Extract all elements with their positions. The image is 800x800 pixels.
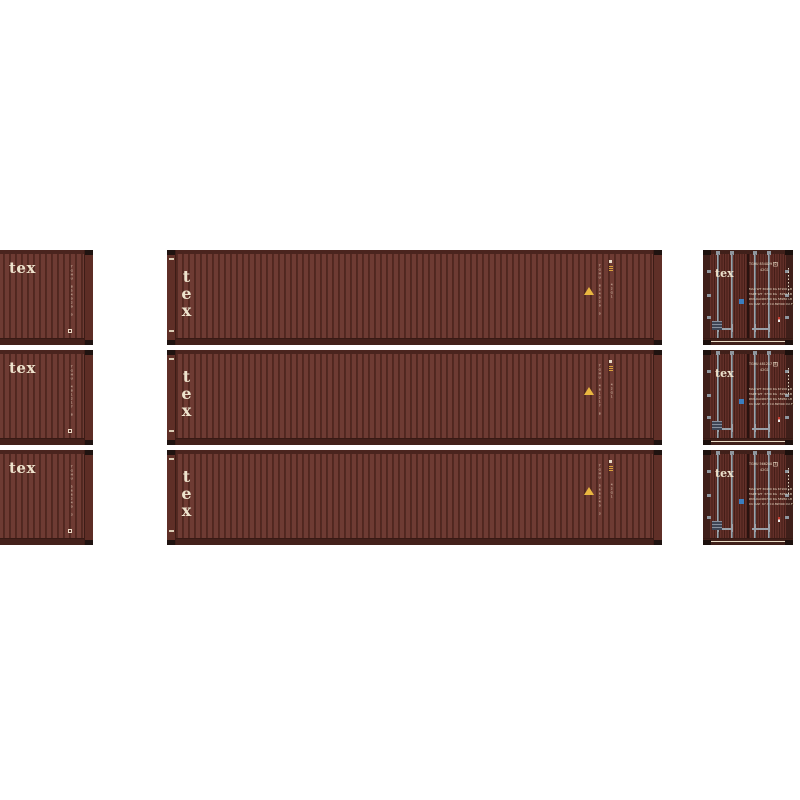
corner-casting xyxy=(85,450,93,455)
tex-logo: tex xyxy=(9,459,36,477)
hazard-triangle-icon xyxy=(584,287,594,295)
corner-casting xyxy=(785,350,793,355)
corner-casting xyxy=(785,440,793,445)
top-rail xyxy=(167,250,662,254)
check-digit: 3 xyxy=(773,462,777,466)
post-marking-vertical xyxy=(788,468,789,494)
hinge xyxy=(785,316,789,319)
hinge xyxy=(707,394,711,397)
corner-post xyxy=(703,250,710,345)
corner-casting xyxy=(703,540,711,545)
check-digit-box xyxy=(68,329,72,333)
spec-row: CU CAP67.7 CU.M2390 CU.FT xyxy=(749,302,792,307)
sill-stripe xyxy=(708,441,788,443)
handle-keeper xyxy=(768,324,770,332)
container-side-view-cropped: tex TGHU 481217 8 xyxy=(0,350,93,445)
top-rail xyxy=(0,350,93,354)
container-side-view-cropped: tex TGHU 566240 3 xyxy=(0,450,93,545)
hinge xyxy=(707,494,711,497)
top-rail xyxy=(0,450,93,454)
corner-post xyxy=(653,450,662,545)
container-number-vertical: TGHU 854029 0 xyxy=(597,264,601,329)
tex-logo-vertical: tex xyxy=(178,467,194,518)
corner-casting xyxy=(654,250,662,255)
corner-casting xyxy=(167,250,175,255)
corner-casting xyxy=(654,340,662,345)
corner-post xyxy=(84,350,93,445)
container-number: TGHU 4812178 xyxy=(749,362,793,366)
corner-casting xyxy=(167,440,175,445)
bottom-rail xyxy=(167,538,662,545)
hinge-mark xyxy=(169,430,174,432)
container-number-vertical: TGHU 854029 0 xyxy=(69,265,73,330)
bottom-rail xyxy=(0,438,93,445)
check-digit-box xyxy=(68,529,72,533)
data-plate xyxy=(712,421,722,430)
hinge xyxy=(707,516,711,519)
type-code: 42G1 xyxy=(760,369,769,372)
hinge xyxy=(785,416,789,419)
hazard-triangle-icon xyxy=(584,487,594,495)
container-door-view: tex TGHU 5662403 42G1 MAX WT30480 KG6720… xyxy=(703,450,793,545)
corner-post xyxy=(167,350,176,445)
tex-logo: tex xyxy=(715,467,734,480)
bottom-rail xyxy=(167,438,662,445)
corner-post xyxy=(167,250,176,345)
corner-post xyxy=(703,450,710,545)
tex-logo-vertical: tex xyxy=(178,367,194,418)
corner-casting xyxy=(785,340,793,345)
container-number-text: TGHU 854029 xyxy=(749,262,772,266)
hinge-mark xyxy=(169,530,174,532)
container-number-vertical: TGHU 481217 8 xyxy=(69,365,73,430)
corner-casting xyxy=(785,540,793,545)
hinge-mark xyxy=(169,458,174,460)
container-side-view-cropped: tex TGHU 854029 0 xyxy=(0,250,93,345)
type-code-vertical: 42G1 xyxy=(610,383,613,399)
corner-casting xyxy=(703,450,711,455)
sill-stripe xyxy=(708,341,788,343)
corner-post xyxy=(84,450,93,545)
type-code: 42G1 xyxy=(760,469,769,472)
gold-bars-mark xyxy=(609,266,613,271)
hinge-mark xyxy=(169,330,174,332)
blue-sticker xyxy=(739,299,744,304)
corner-casting xyxy=(85,440,93,445)
check-digit: 8 xyxy=(773,362,777,366)
tex-logo-vertical: tex xyxy=(178,267,194,318)
container-number: TGHU 5662403 xyxy=(749,462,793,466)
blue-sticker xyxy=(739,499,744,504)
corner-casting xyxy=(654,450,662,455)
blue-sticker xyxy=(739,399,744,404)
sill-stripe xyxy=(708,541,788,543)
handle-keeper xyxy=(731,524,733,532)
corner-post xyxy=(653,250,662,345)
type-code: 42G1 xyxy=(760,269,769,272)
container-number-text: TGHU 566240 xyxy=(749,462,772,466)
corner-casting xyxy=(85,340,93,345)
hinge xyxy=(707,270,711,273)
handle-keeper xyxy=(768,524,770,532)
corner-post xyxy=(167,450,176,545)
check-digit: 0 xyxy=(773,262,777,266)
container-door-view: tex TGHU 4812178 42G1 MAX WT30480 KG6720… xyxy=(703,350,793,445)
seal-mark xyxy=(778,317,780,322)
container-side-view: tex TGHU 566240 3 42G1 xyxy=(167,450,662,545)
handle-keeper xyxy=(754,424,756,432)
seal-mark xyxy=(778,517,780,522)
container-row: tex TGHU 854029 0 tex TGHU 854029 0 42G1 xyxy=(0,250,800,345)
spec-table: MAX WT30480 KG67200 LB TARE WT3740 KG825… xyxy=(749,487,792,507)
handle-keeper xyxy=(754,324,756,332)
label-chip xyxy=(609,360,612,363)
hinge-mark xyxy=(169,258,174,260)
corner-casting xyxy=(654,440,662,445)
bottom-rail xyxy=(0,338,93,345)
corner-post xyxy=(653,350,662,445)
corner-casting xyxy=(85,540,93,545)
corner-casting xyxy=(85,250,93,255)
hinge xyxy=(707,370,711,373)
container-side-view: tex TGHU 854029 0 42G1 xyxy=(167,250,662,345)
check-digit-box xyxy=(68,429,72,433)
bottom-rail xyxy=(0,538,93,545)
container-row: tex TGHU 566240 3 tex TGHU 566240 3 42G1 xyxy=(0,450,800,545)
corner-casting xyxy=(654,350,662,355)
tex-logo: tex xyxy=(9,259,36,277)
type-code-vertical: 42G1 xyxy=(610,483,613,499)
container-number-vertical: TGHU 566240 3 xyxy=(69,465,73,530)
corner-casting xyxy=(703,340,711,345)
hinge xyxy=(707,294,711,297)
corner-casting xyxy=(654,540,662,545)
post-marking-vertical xyxy=(788,268,789,294)
container-number-vertical: TGHU 566240 3 xyxy=(597,464,601,529)
spec-row: CU CAP67.7 CU.M2390 CU.FT xyxy=(749,502,792,507)
corner-casting xyxy=(85,350,93,355)
corner-casting xyxy=(703,250,711,255)
corner-post xyxy=(703,350,710,445)
spec-table: MAX WT30480 KG67200 LB TARE WT3740 KG825… xyxy=(749,287,792,307)
hazard-triangle-icon xyxy=(584,387,594,395)
bottom-rail xyxy=(167,338,662,345)
hinge xyxy=(707,470,711,473)
handle-keeper xyxy=(731,324,733,332)
corner-casting xyxy=(703,350,711,355)
label-chip xyxy=(609,260,612,263)
hinge xyxy=(707,416,711,419)
top-rail xyxy=(167,450,662,454)
corner-casting xyxy=(167,350,175,355)
hinge xyxy=(707,316,711,319)
spec-table: MAX WT30480 KG67200 LB TARE WT3740 KG825… xyxy=(749,387,792,407)
hinge-mark xyxy=(169,358,174,360)
post-marking-vertical xyxy=(788,368,789,394)
container-side-view: tex TGHU 481217 8 42G1 xyxy=(167,350,662,445)
corner-casting xyxy=(785,450,793,455)
corner-casting xyxy=(785,250,793,255)
data-plate xyxy=(712,521,722,530)
top-rail xyxy=(167,350,662,354)
container-number-text: TGHU 481217 xyxy=(749,362,772,366)
gold-bars-mark xyxy=(609,366,613,371)
handle-keeper xyxy=(754,524,756,532)
corner-casting xyxy=(167,340,175,345)
handle-keeper xyxy=(731,424,733,432)
container-door-view: tex TGHU 8540290 42G1 MAX WT30480 KG6720… xyxy=(703,250,793,345)
container-number: TGHU 8540290 xyxy=(749,262,793,266)
type-code-vertical: 42G1 xyxy=(610,283,613,299)
corner-post xyxy=(84,250,93,345)
handle-keeper xyxy=(768,424,770,432)
tex-logo: tex xyxy=(715,367,734,380)
hinge xyxy=(785,516,789,519)
container-row: tex TGHU 481217 8 tex TGHU 481217 8 42G1 xyxy=(0,350,800,445)
tex-logo: tex xyxy=(715,267,734,280)
spec-row: CU CAP67.7 CU.M2390 CU.FT xyxy=(749,402,792,407)
tex-logo: tex xyxy=(9,359,36,377)
label-chip xyxy=(609,460,612,463)
data-plate xyxy=(712,321,722,330)
container-number-vertical: TGHU 481217 8 xyxy=(597,364,601,429)
top-rail xyxy=(0,250,93,254)
corner-casting xyxy=(167,540,175,545)
corner-casting xyxy=(167,450,175,455)
gold-bars-mark xyxy=(609,466,613,471)
corner-casting xyxy=(703,440,711,445)
seal-mark xyxy=(778,417,780,422)
